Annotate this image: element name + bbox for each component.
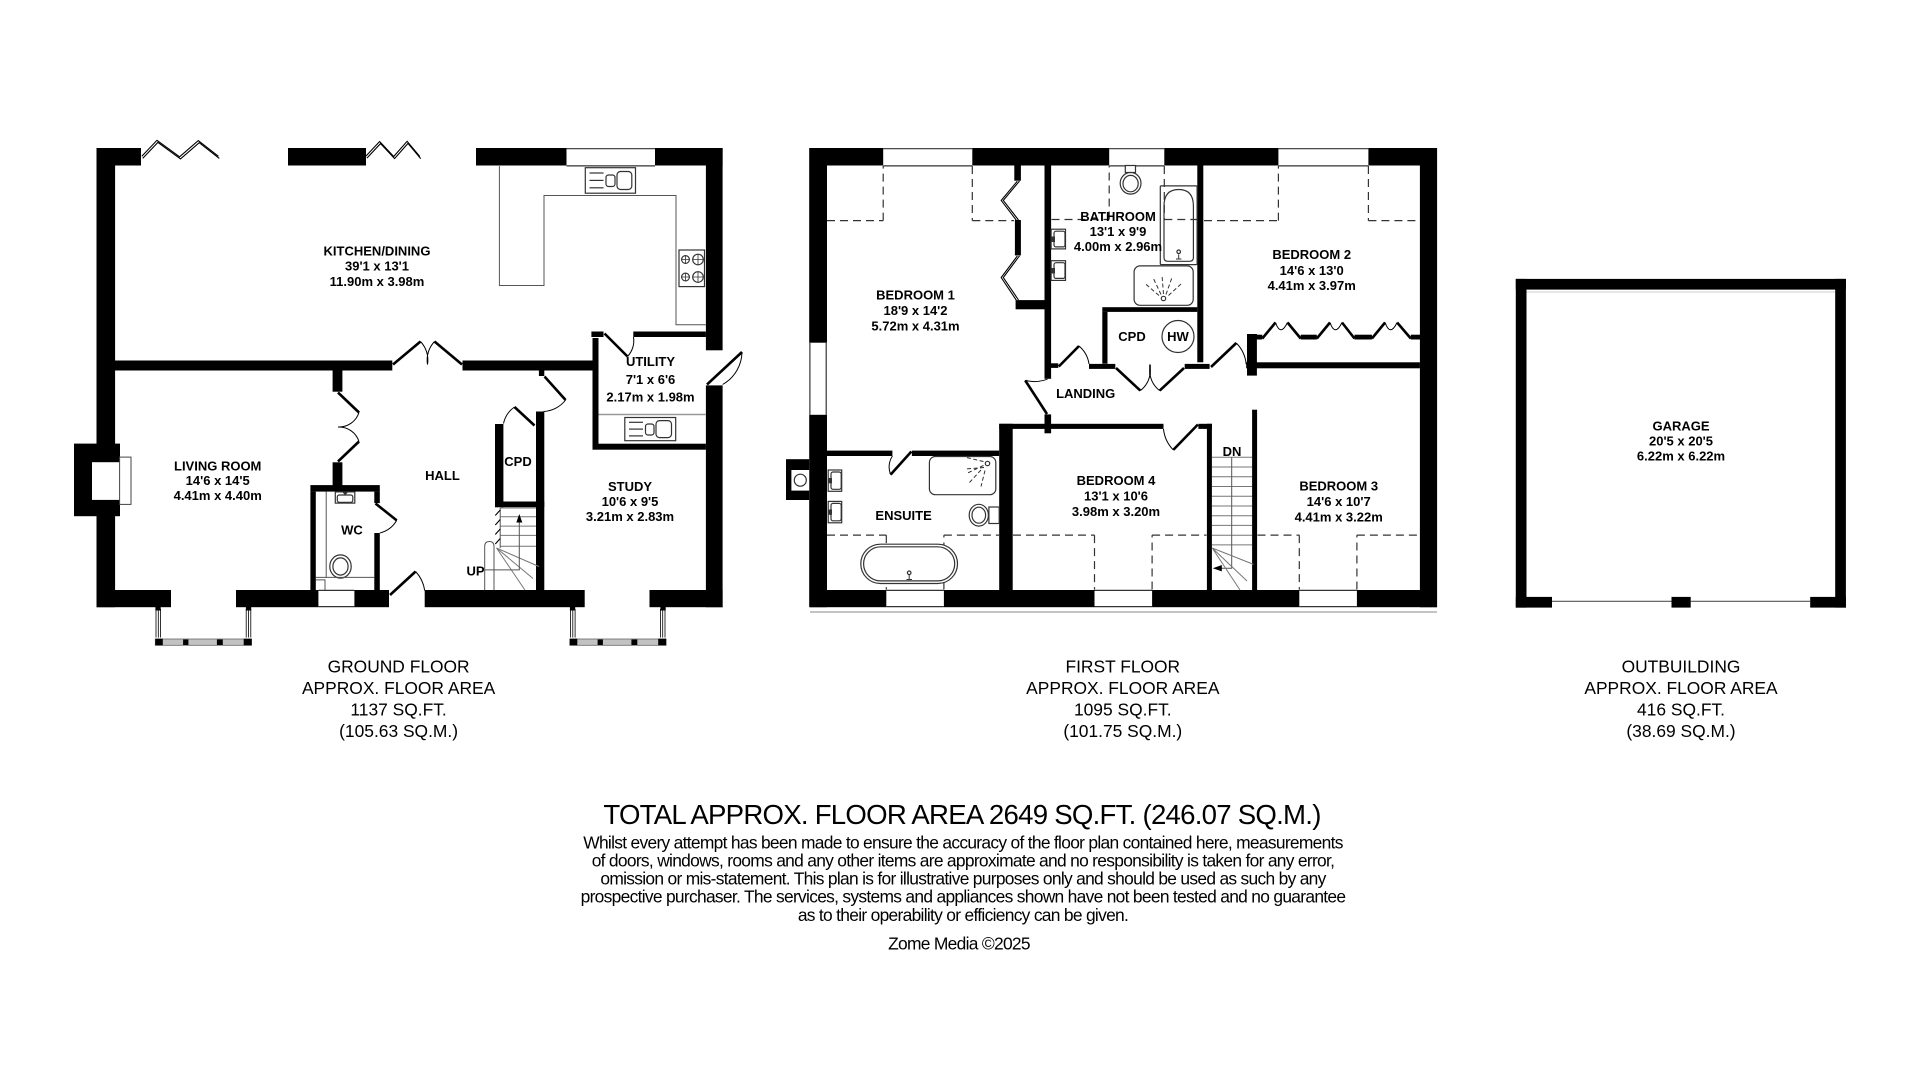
svg-text:LANDING: LANDING (1056, 386, 1115, 401)
svg-text:APPROX. FLOOR AREA: APPROX. FLOOR AREA (302, 678, 496, 698)
svg-text:11.90m x 3.98m: 11.90m x 3.98m (330, 274, 425, 289)
svg-text:BEDROOM 3: BEDROOM 3 (1299, 479, 1378, 494)
svg-text:BEDROOM 4: BEDROOM 4 (1077, 473, 1157, 488)
svg-text:prospective purchaser. The ser: prospective purchaser. The services, sys… (581, 887, 1346, 907)
svg-text:1095 SQ.FT.: 1095 SQ.FT. (1074, 700, 1172, 720)
svg-text:4.41m x 3.97m: 4.41m x 3.97m (1268, 278, 1356, 293)
svg-text:20'5 x 20'5: 20'5 x 20'5 (1649, 434, 1713, 449)
svg-text:ENSUITE: ENSUITE (875, 508, 932, 523)
svg-text:DN: DN (1223, 444, 1242, 459)
svg-text:14'6 x 13'0: 14'6 x 13'0 (1280, 263, 1344, 278)
svg-text:CPD: CPD (1118, 329, 1145, 344)
svg-text:6.22m x 6.22m: 6.22m x 6.22m (1637, 449, 1725, 464)
svg-text:7'1 x 6'6: 7'1 x 6'6 (626, 372, 676, 387)
svg-text:APPROX. FLOOR AREA: APPROX. FLOOR AREA (1584, 678, 1778, 698)
svg-text:BATHROOM: BATHROOM (1080, 209, 1156, 224)
svg-text:as to their operability or eff: as to their operability or efficiency ca… (798, 905, 1128, 925)
svg-text:4.00m x 2.96m: 4.00m x 2.96m (1074, 239, 1162, 254)
svg-text:WC: WC (341, 523, 363, 538)
svg-text:(101.75 SQ.M.): (101.75 SQ.M.) (1063, 721, 1182, 741)
svg-text:Whilst every attempt has been: Whilst every attempt has been made to en… (583, 832, 1344, 852)
svg-text:KITCHEN/DINING: KITCHEN/DINING (324, 243, 431, 258)
svg-text:UTILITY: UTILITY (626, 354, 675, 369)
svg-text:FIRST FLOOR: FIRST FLOOR (1065, 657, 1180, 677)
svg-text:BEDROOM 1: BEDROOM 1 (876, 288, 955, 303)
svg-text:416 SQ.FT.: 416 SQ.FT. (1637, 700, 1725, 720)
svg-text:(38.69 SQ.M.): (38.69 SQ.M.) (1626, 721, 1735, 741)
svg-text:HALL: HALL (425, 468, 460, 483)
svg-text:(105.63 SQ.M.): (105.63 SQ.M.) (339, 721, 458, 741)
svg-text:3.98m x 3.20m: 3.98m x 3.20m (1072, 504, 1160, 519)
svg-text:BEDROOM 2: BEDROOM 2 (1272, 247, 1351, 262)
svg-text:1137 SQ.FT.: 1137 SQ.FT. (350, 700, 446, 720)
svg-text:TOTAL APPROX. FLOOR AREA 2649: TOTAL APPROX. FLOOR AREA 2649 SQ.FT. (24… (603, 799, 1320, 830)
svg-text:4.41m x 4.40m: 4.41m x 4.40m (174, 488, 262, 503)
svg-text:APPROX. FLOOR AREA: APPROX. FLOOR AREA (1026, 678, 1220, 698)
svg-text:14'6 x 14'5: 14'6 x 14'5 (186, 473, 250, 488)
svg-text:13'1 x 9'9: 13'1 x 9'9 (1090, 224, 1147, 239)
svg-text:39'1 x 13'1: 39'1 x 13'1 (345, 259, 409, 274)
svg-text:OUTBUILDING: OUTBUILDING (1622, 657, 1741, 677)
svg-text:Zome Media ©2025: Zome Media ©2025 (888, 934, 1030, 954)
svg-text:3.21m x 2.83m: 3.21m x 2.83m (586, 509, 674, 524)
svg-text:HW: HW (1167, 329, 1189, 344)
svg-text:omission or mis-statement. Thi: omission or mis-statement. This plan is … (600, 869, 1326, 889)
svg-text:LIVING ROOM: LIVING ROOM (174, 458, 261, 473)
svg-text:of doors, windows, rooms and a: of doors, windows, rooms and any other i… (592, 851, 1335, 871)
svg-text:4.41m x 3.22m: 4.41m x 3.22m (1295, 510, 1383, 525)
svg-text:13'1 x 10'6: 13'1 x 10'6 (1084, 489, 1148, 504)
svg-text:5.72m x 4.31m: 5.72m x 4.31m (871, 319, 959, 334)
svg-text:UP: UP (466, 564, 484, 579)
svg-text:GARAGE: GARAGE (1652, 419, 1709, 434)
svg-text:10'6 x 9'5: 10'6 x 9'5 (602, 494, 659, 509)
svg-text:CPD: CPD (504, 454, 531, 469)
svg-text:14'6 x 10'7: 14'6 x 10'7 (1307, 494, 1371, 509)
svg-text:18'9 x 14'2: 18'9 x 14'2 (883, 303, 947, 318)
svg-text:STUDY: STUDY (608, 479, 652, 494)
svg-text:GROUND FLOOR: GROUND FLOOR (328, 657, 470, 677)
svg-text:2.17m x 1.98m: 2.17m x 1.98m (606, 389, 694, 404)
